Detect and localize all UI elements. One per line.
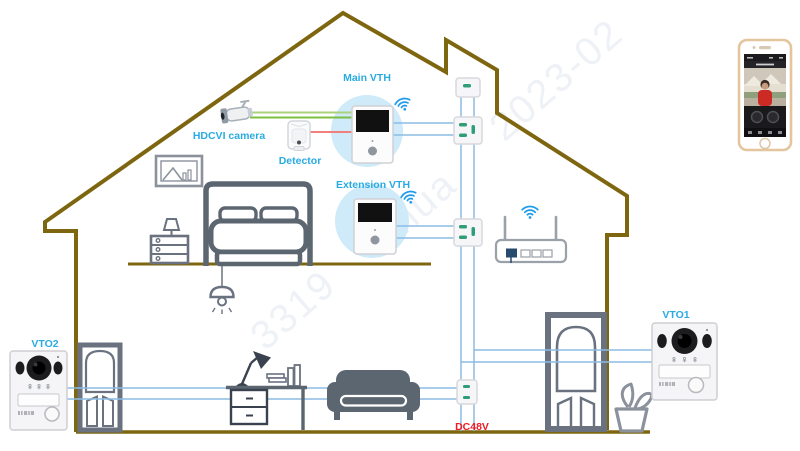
detector-icon bbox=[288, 121, 310, 151]
installation-diagram: 3319 hua 2023-02 bbox=[0, 0, 800, 451]
watermark-fragment: 3319 bbox=[242, 262, 344, 359]
label-extension-vth: Extension VTH bbox=[336, 179, 410, 191]
label-detector: Detector bbox=[279, 155, 322, 167]
main-vth-device bbox=[352, 106, 393, 163]
trunk-top-led bbox=[463, 84, 471, 88]
label-vto2: VTO2 bbox=[31, 338, 58, 350]
watermark-fragment: 2023-02 bbox=[481, 11, 631, 150]
phone-screen bbox=[744, 54, 786, 137]
router-icon bbox=[496, 217, 566, 263]
nightstand bbox=[151, 219, 188, 263]
label-vto1: VTO1 bbox=[662, 309, 689, 321]
label-main-vth: Main VTH bbox=[343, 72, 391, 84]
hdcvi-camera-icon bbox=[219, 101, 253, 124]
desk bbox=[226, 351, 307, 430]
phone-video-feed bbox=[744, 68, 786, 106]
vto2-device bbox=[10, 351, 67, 430]
wifi-icon bbox=[522, 206, 538, 218]
nightstand-lamp bbox=[164, 219, 179, 236]
junction-box bbox=[454, 219, 482, 246]
junction-box bbox=[454, 117, 482, 144]
label-dc48v: DC48V bbox=[455, 421, 489, 433]
picture-frame bbox=[156, 156, 202, 186]
desk-lamp bbox=[235, 351, 271, 387]
vto1-device bbox=[652, 323, 717, 400]
smartphone bbox=[739, 40, 791, 150]
extension-vth-device bbox=[354, 199, 396, 254]
diagram-canvas: 3319 hua 2023-02 bbox=[0, 0, 800, 451]
label-hdcvi-camera: HDCVI camera bbox=[193, 130, 266, 142]
plant-icon bbox=[616, 384, 652, 431]
pendant-light-icon bbox=[211, 266, 234, 314]
books bbox=[267, 365, 300, 386]
bed bbox=[206, 184, 310, 266]
sofa bbox=[327, 370, 420, 420]
front-door bbox=[548, 315, 604, 429]
phone-home-button bbox=[760, 139, 770, 149]
wifi-icon bbox=[394, 97, 412, 113]
junction-box bbox=[457, 380, 477, 404]
